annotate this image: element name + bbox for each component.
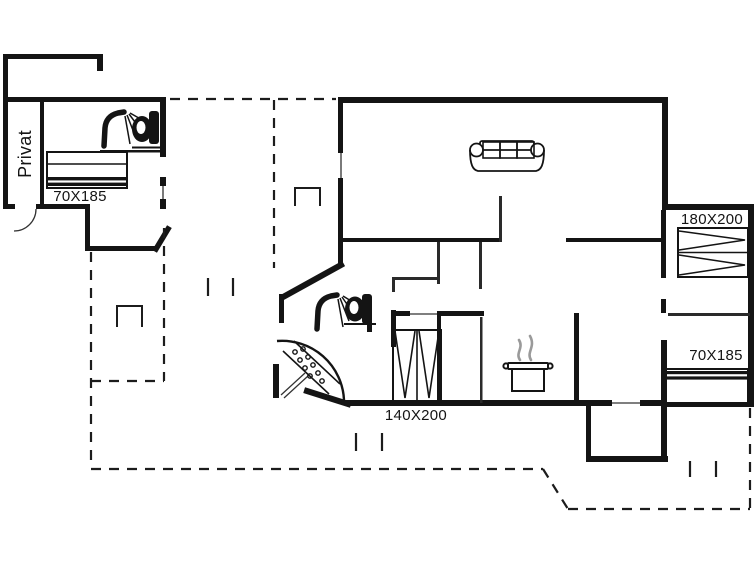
bed-size-label-annex: 70X185 <box>40 189 120 205</box>
terrace-step-marks <box>208 278 716 477</box>
bed-size-label-right-single: 70X185 <box>676 348 755 364</box>
bed-size-label-master: 180X200 <box>672 212 752 228</box>
outdoor-table-icon <box>117 188 320 327</box>
main-house-walls <box>273 97 754 462</box>
sofa-icon <box>470 141 544 171</box>
bed-70x185-annex <box>47 152 127 188</box>
room-label-privat: Privat <box>17 112 33 196</box>
door-thresholds <box>281 153 640 403</box>
floor-plan: Privat 70X185 180X200 70X185 140X200 <box>0 0 755 566</box>
terrace-dashed-boundary <box>91 99 750 509</box>
annex-diagonal-wall <box>156 229 168 249</box>
cooking-pot-icon <box>503 336 552 391</box>
bed-140x200 <box>393 330 441 401</box>
bed-180x200 <box>678 228 748 277</box>
floor-plan-drawing <box>0 0 755 566</box>
bed-70x185-right <box>666 369 748 403</box>
bed-size-label-alcove: 140X200 <box>376 408 456 424</box>
